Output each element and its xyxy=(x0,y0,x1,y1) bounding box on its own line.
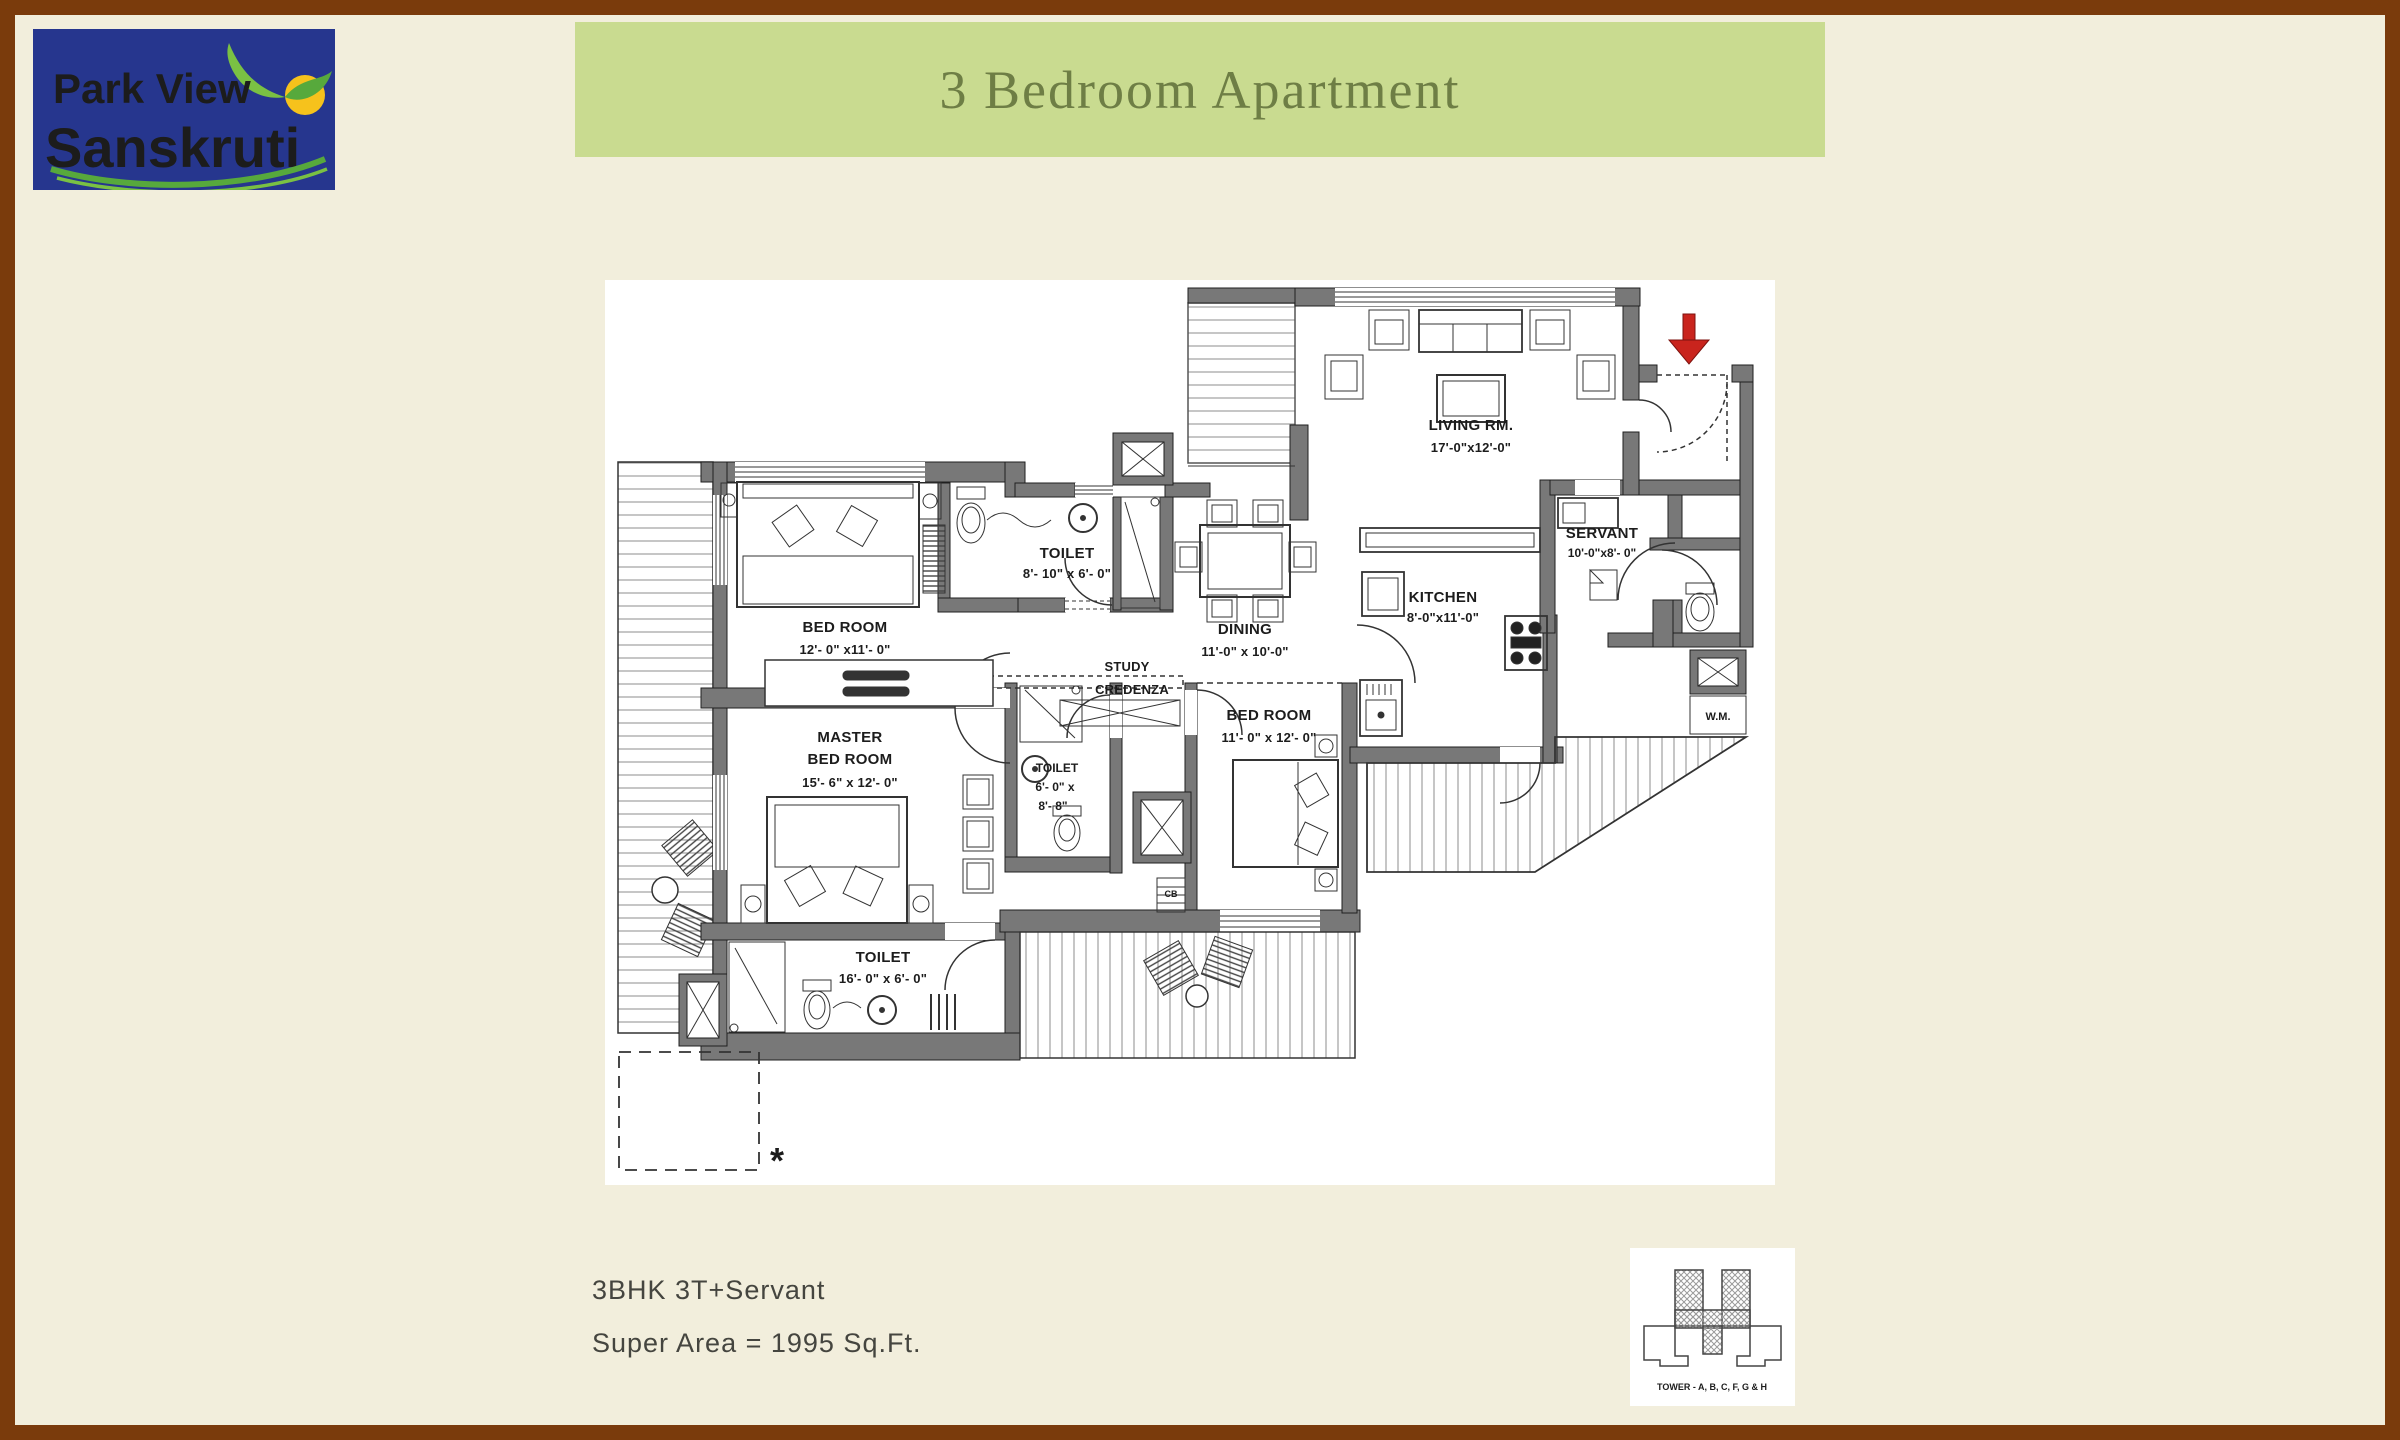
tower-key-plan: TOWER - A, B, C, F, G & H xyxy=(1630,1248,1795,1406)
label-kitchen: KITCHEN xyxy=(1409,589,1478,606)
label-toilet-master-dims: 16'- 0" x 6'- 0" xyxy=(839,971,927,986)
tower-key-drawing: TOWER - A, B, C, F, G & H xyxy=(1630,1248,1795,1406)
plan-type: 3BHK 3T+Servant xyxy=(592,1277,921,1304)
label-servant-dims: 10'-0"x8'- 0" xyxy=(1568,546,1636,560)
label-kitchen-dims: 8'-0"x11'-0" xyxy=(1407,610,1479,625)
label-toilet-mid-dims2: 8'- 8" xyxy=(1038,799,1067,813)
tower-key-caption: TOWER - A, B, C, F, G & H xyxy=(1657,1382,1767,1392)
label-toilet-common: TOILET xyxy=(1040,545,1095,562)
terrace-table xyxy=(652,877,678,903)
logo-line2: Sanskruti xyxy=(45,116,300,179)
label-dining: DINING xyxy=(1218,621,1272,638)
shaft-middle xyxy=(1133,792,1191,863)
label-bedroom2: BED ROOM xyxy=(1227,707,1312,724)
title-banner: 3 Bedroom Apartment xyxy=(575,22,1825,157)
label-toilet-common-dims: 8'- 10" x 6'- 0" xyxy=(1023,566,1111,581)
label-bedroom1-dims: 12'- 0" x11'- 0" xyxy=(799,642,890,657)
plan-summary: 3BHK 3T+Servant Super Area = 1995 Sq.Ft. xyxy=(592,1277,921,1383)
shaft-terrace xyxy=(679,974,727,1046)
label-study-1: STUDY xyxy=(1104,659,1149,674)
label-master-1: MASTER xyxy=(817,729,882,746)
label-bedroom1: BED ROOM xyxy=(803,619,888,636)
label-toilet-mid-dims1: 6'- 0" x xyxy=(1035,780,1075,794)
page-title: 3 Bedroom Apartment xyxy=(940,59,1461,121)
label-cb: CB xyxy=(1165,889,1178,899)
floorplan: BED ROOM 12'- 0" x11'- 0" TOILET 8'- 10"… xyxy=(605,280,1775,1185)
label-study-2: CREDENZA xyxy=(1095,682,1169,697)
shaft-right xyxy=(1690,650,1746,694)
floorplan-drawing: BED ROOM 12'- 0" x11'- 0" TOILET 8'- 10"… xyxy=(605,280,1775,1185)
terrace-left xyxy=(618,462,718,1033)
parkview-sanskruti-logo: Park View Sanskruti xyxy=(33,29,335,190)
label-dining-dims: 11'-0" x 10'-0" xyxy=(1201,644,1288,659)
label-master-2: BED ROOM xyxy=(808,751,893,768)
balcony-bottom xyxy=(1020,932,1355,1058)
plan-area: Super Area = 1995 Sq.Ft. xyxy=(592,1330,921,1357)
page-background: Park View Sanskruti 3 Bedroom Apartment xyxy=(15,15,2385,1425)
label-bedroom2-dims: 11'- 0" x 12'- 0" xyxy=(1222,730,1317,745)
note-asterisk: * xyxy=(770,1140,784,1181)
logo-line1: Park View xyxy=(53,65,251,112)
label-living-dims: 17'-0"x12'-0" xyxy=(1431,440,1511,455)
label-toilet-master: TOILET xyxy=(856,949,911,966)
logo-art: Park View Sanskruti xyxy=(33,29,335,190)
label-living: LIVING RM. xyxy=(1429,417,1514,434)
label-servant: SERVANT xyxy=(1566,525,1638,542)
shaft-toilet-common xyxy=(1113,433,1173,485)
label-wm: W.M. xyxy=(1705,711,1730,723)
label-toilet-mid: TOILET xyxy=(1036,761,1079,775)
label-master-dims: 15'- 6" x 12'- 0" xyxy=(802,775,898,790)
